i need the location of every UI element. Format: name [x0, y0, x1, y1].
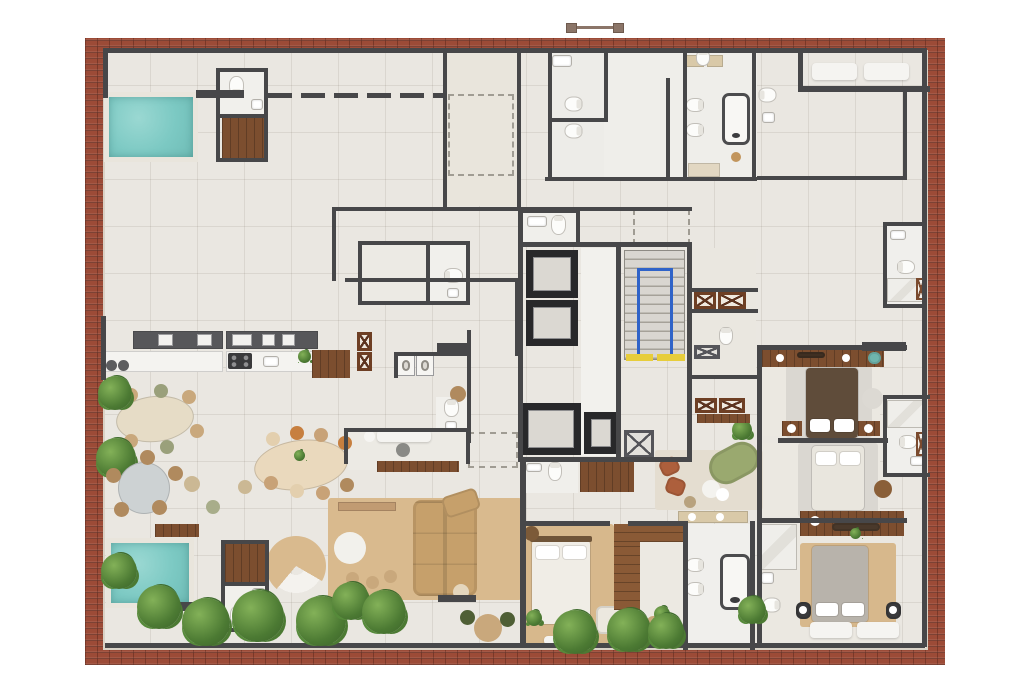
elevator-1 [526, 250, 578, 298]
bath-cluster-wall [683, 50, 687, 178]
east-wall [757, 176, 905, 180]
hall-wall [545, 177, 757, 181]
closet-wardrobe-top [614, 524, 686, 542]
nightstand-lamp [787, 424, 796, 433]
tv-console [438, 595, 476, 602]
suite4-desk-plant [850, 528, 861, 539]
table-centerpiece [294, 450, 305, 461]
suite2-bed [806, 368, 858, 438]
lobby-bath-toilet-2 [565, 124, 583, 139]
master-bath-wall [750, 521, 755, 650]
hall-wall [332, 207, 336, 281]
dining-chair [160, 440, 174, 454]
corridor-wall [692, 309, 758, 313]
duct-shaft-upper-right [718, 292, 746, 309]
planter-plant [648, 613, 684, 649]
laundry-shaft-1 [357, 332, 372, 351]
perimeter-wall-left [103, 48, 108, 98]
office-wall [344, 428, 348, 464]
east-bath-upper-wall [883, 304, 927, 308]
suite3-drum-stool [874, 480, 892, 498]
bath-cluster-wall [548, 50, 552, 178]
east-bath-mid-shower [887, 400, 926, 428]
storage-floor [362, 245, 426, 303]
perimeter-wall-top [105, 48, 927, 53]
core-bath-wall [518, 209, 523, 245]
closet-south-wood-floor [225, 542, 267, 582]
east-bath-mid-wall [883, 473, 930, 477]
suite4-bench [810, 622, 852, 638]
east-bath-upper-wall [883, 222, 927, 226]
oval-chair [314, 428, 328, 442]
planned-room-outline [468, 432, 518, 468]
bath-cluster-wall [604, 50, 608, 120]
floor-plan-render [0, 0, 1024, 683]
planter-plant [232, 590, 284, 642]
dresser-tray [797, 352, 825, 358]
core-bath-sink [527, 216, 547, 227]
east-bath-mid-wall [883, 395, 930, 399]
stair-warning-strip-left [626, 354, 653, 361]
elevator-2 [526, 300, 578, 346]
east-bath-mid-toilet [899, 435, 917, 449]
planned-room-outline [448, 94, 514, 176]
office-lamp [364, 431, 375, 442]
north-bath-sink [762, 112, 775, 123]
master-plant [526, 610, 542, 626]
lounge-chair [152, 500, 167, 515]
dresser-lamp [842, 354, 850, 362]
lounge-pouf [184, 476, 200, 492]
bath-cluster-wall [548, 118, 608, 122]
terrace-bench-ne [864, 63, 909, 80]
corridor-wall [692, 288, 758, 292]
planned-room-outline [633, 209, 690, 245]
hall-door-slab [437, 343, 470, 356]
wc-mid-sink [447, 288, 459, 298]
office-chair [396, 443, 410, 457]
stair-warning-strip-right [657, 354, 685, 361]
kitchen-exterior-wall [101, 316, 106, 380]
wc-mid2-toilet [444, 399, 459, 417]
suite4-bed [812, 546, 868, 622]
lounge-pouf [238, 480, 252, 494]
duct-shaft-lower-right [719, 398, 745, 413]
nightstand-lamp [889, 606, 897, 614]
office-wall [344, 428, 470, 432]
elevator-4 [584, 412, 618, 454]
bath-floor-lobby [548, 52, 604, 178]
planter-plant [137, 585, 181, 629]
round-side-table [716, 488, 729, 501]
suite4-bench [857, 622, 899, 638]
nightstand-lamp [799, 606, 807, 614]
dresser-teal-box [868, 352, 881, 364]
core-wall-divider [616, 242, 621, 462]
corridor-plant [732, 420, 752, 440]
north-bath-toilet-2 [686, 123, 704, 137]
perimeter-wall-bottom [105, 643, 925, 648]
lounge-stool [684, 496, 696, 508]
corridor-wc-toilet [719, 327, 733, 345]
planter-plant [738, 596, 766, 624]
lounge-console [697, 414, 750, 423]
closet-south-wall [221, 540, 269, 544]
north-bath-counter [688, 163, 720, 177]
vanity-sink [716, 513, 724, 521]
wc-north-sink [251, 99, 263, 110]
storage-wall [358, 241, 362, 305]
duct-shaft-lower-left [695, 398, 717, 413]
storage-wall [426, 241, 430, 305]
core-wall-left [518, 242, 523, 462]
closet-south-wall [221, 582, 269, 586]
master-toilet-2 [686, 582, 704, 596]
hall-wall [345, 278, 517, 282]
east-bath-upper-sink [890, 230, 906, 240]
suite2-3-divider [778, 438, 888, 443]
lounge-chair [114, 502, 129, 517]
core-wall-top [518, 242, 692, 247]
storage-wall [466, 241, 470, 305]
pool-north-ledge [196, 90, 244, 98]
stair-railing [637, 268, 673, 354]
closet-wardrobe-side [614, 542, 640, 610]
service-shaft-core [624, 430, 654, 458]
lobby-bath-sink [552, 55, 572, 67]
wc-mid2-wall [467, 330, 471, 443]
plan-items [0, 0, 1024, 683]
wc-north-wall [216, 68, 268, 72]
north-bath-toilet-1 [686, 98, 704, 112]
oval-chair [264, 476, 278, 490]
door-swing-marker [572, 26, 618, 29]
corridor-wall [692, 375, 758, 379]
kitchen-island [312, 350, 350, 378]
coffee-table [334, 532, 366, 564]
oval-chair [340, 478, 354, 492]
storage-wall [358, 301, 470, 305]
south-corridor-wood-floor [580, 458, 634, 492]
oval-chair [316, 486, 330, 500]
dining-chair [190, 424, 204, 438]
suite2-tv-wall [862, 342, 906, 351]
oval-chair [266, 432, 280, 446]
dining-chair [154, 384, 168, 398]
planter-plant [101, 553, 137, 589]
living-stool [384, 570, 397, 583]
slat-bench [155, 524, 199, 537]
kitchen-planter-2 [118, 360, 129, 371]
core-bath-wall [576, 209, 580, 245]
vanity-sink [688, 513, 696, 521]
master-toilet-1 [686, 558, 704, 572]
terrace-plant [98, 376, 132, 410]
east-bath-upper-wall [883, 222, 887, 308]
bath-sw-shower [759, 524, 797, 570]
lounge-chair [140, 450, 155, 465]
closet-north-wood-floor [222, 118, 266, 158]
foyer-wall [443, 50, 447, 208]
kitchen-planter-1 [106, 360, 117, 371]
planter-plant [182, 598, 230, 646]
washer [397, 355, 415, 376]
planter-plant [362, 590, 406, 634]
oval-chair [290, 484, 304, 498]
wc-north-wall [216, 158, 268, 162]
suite2-ottoman [862, 388, 883, 409]
core-bath-lower-sink [526, 463, 542, 472]
lounge-chair [168, 466, 183, 481]
lobby-bath-toilet-1 [565, 97, 583, 112]
kitchen-sink [263, 356, 279, 367]
foyer-wall [517, 50, 521, 208]
office-sideboard [377, 461, 459, 472]
wc-north-wall [216, 114, 268, 118]
terrace-chair [460, 610, 475, 625]
dresser-lamp [776, 354, 784, 362]
elevator-3 [521, 403, 581, 455]
terrace-bench-ne [812, 63, 857, 80]
service-shaft-corridor [694, 345, 720, 359]
laundry-shaft-2 [357, 352, 372, 371]
kitchen-appliance-4 [262, 334, 275, 346]
living-stool [366, 576, 379, 589]
kitchen-appliance-2 [197, 334, 212, 346]
bath-sw-sink [761, 572, 774, 584]
living-console [338, 502, 396, 511]
core-bath-toilet [551, 215, 566, 235]
ne-wall [903, 92, 907, 180]
master-wall [520, 458, 526, 648]
suite3-4-divider [757, 518, 907, 523]
east-bath-upper-toilet [897, 260, 915, 274]
kitchen-appliance-5 [282, 334, 295, 346]
core-bath-lower-toilet [548, 462, 562, 481]
perimeter-wall-right [922, 48, 927, 647]
suite3-bed [812, 446, 864, 510]
laundry-wall [394, 352, 438, 356]
core-bath-wall [518, 209, 580, 213]
terrace-chair [500, 612, 515, 627]
terrace-table [474, 614, 502, 642]
dining-chair [182, 390, 196, 404]
bath-cluster-wall [752, 50, 756, 178]
column-line-wall [268, 93, 446, 98]
kitchen-herb-plant [298, 350, 311, 363]
east-bath-mid-wall [883, 395, 887, 477]
master-nightstand [524, 526, 539, 541]
bath-cluster-wall [666, 78, 670, 178]
hall-wall [332, 207, 522, 211]
duct-shaft-upper-left [694, 292, 716, 309]
lounge-pouf [206, 500, 220, 514]
kitchen-appliance-3 [232, 334, 252, 346]
curved-sofa [266, 536, 326, 596]
core-wall-right [687, 242, 692, 462]
ne-wall [798, 86, 930, 92]
plunge-pool-north [104, 92, 198, 162]
north-bath-toilet-3 [759, 88, 777, 103]
storage-wall [358, 241, 470, 245]
master-wall [526, 521, 610, 526]
kitchen-appliance-1 [158, 334, 173, 346]
nightstand-lamp [864, 424, 873, 433]
north-bathtub [722, 93, 750, 145]
core-wall-bottom [518, 457, 692, 462]
master-wall [628, 521, 688, 526]
dryer [416, 355, 434, 376]
oval-chair [290, 426, 304, 440]
cooktop [228, 353, 252, 369]
planter-plant [607, 608, 651, 652]
lounge-chair [106, 468, 121, 483]
bath-rug [731, 152, 741, 162]
planter-plant [553, 610, 597, 654]
